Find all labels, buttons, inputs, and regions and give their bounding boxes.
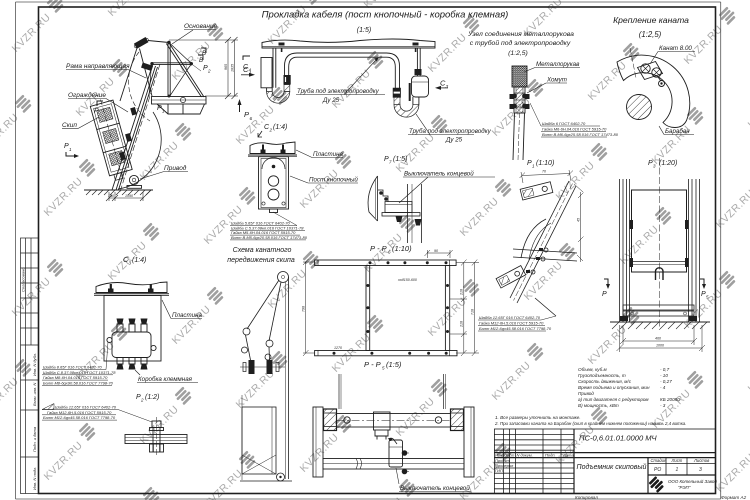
svg-text:Шайба С.8.37.08кп.016 ГОСТ 103: Шайба С.8.37.08кп.016 ГОСТ 10371-78 bbox=[43, 370, 116, 375]
svg-text:ГИП: ГИП bbox=[495, 468, 503, 473]
svg-text:N докум.: N докум. bbox=[517, 453, 533, 458]
svg-text:1000: 1000 bbox=[656, 344, 664, 348]
svg-text:- 0,7: - 0,7 bbox=[660, 367, 670, 372]
svg-text:1: 1 bbox=[532, 164, 535, 169]
svg-text:P: P bbox=[94, 108, 99, 115]
svg-text:Скип: Скип bbox=[62, 122, 77, 129]
svg-text:150: 150 bbox=[108, 194, 114, 198]
svg-text:1090: 1090 bbox=[125, 194, 133, 198]
svg-text:Крепление каната: Крепление каната bbox=[613, 15, 689, 25]
svg-text:210: 210 bbox=[460, 321, 464, 328]
svg-text:ход150-600: ход150-600 bbox=[397, 278, 417, 282]
svg-text:Схема канатного: Схема канатного bbox=[233, 247, 292, 254]
svg-text:Рама направляющая: Рама направляющая bbox=[66, 63, 130, 70]
svg-text:Р - Р: Р - Р bbox=[364, 360, 381, 369]
svg-text:Грузоподъемность, т: Грузоподъемность, т bbox=[578, 373, 626, 378]
svg-text:Хомут: Хомут bbox=[546, 77, 567, 84]
svg-text:Шайба 6 ГОСТ 6402-70: Шайба 6 ГОСТ 6402-70 bbox=[542, 121, 586, 126]
svg-text:Р: Р bbox=[602, 291, 607, 298]
svg-text:45: 45 bbox=[577, 218, 581, 222]
svg-text:Привод: Привод bbox=[164, 164, 187, 172]
svg-text:Время подъема и опускания, мин: Время подъема и опускания, мин bbox=[578, 385, 650, 390]
svg-text:- 3: - 3 bbox=[660, 403, 666, 408]
svg-text:Ду 25: Ду 25 bbox=[445, 137, 463, 144]
svg-text:5: 5 bbox=[382, 366, 385, 371]
svg-text:Болт М12-6gх45.58.016 ГОСТ 779: Болт М12-6gх45.58.016 ГОСТ 7798-70 bbox=[43, 415, 116, 420]
svg-text:Гайка М8-6Н.04.016 ГОСТ 5915-7: Гайка М8-6Н.04.016 ГОСТ 5915-70 bbox=[43, 375, 108, 380]
svg-text:РО: РО bbox=[654, 467, 661, 473]
svg-text:1270: 1270 bbox=[334, 346, 342, 350]
svg-text:Основание: Основание bbox=[184, 23, 218, 30]
svg-text:Ограждение: Ограждение bbox=[68, 91, 106, 99]
svg-text:1035: 1035 bbox=[231, 64, 235, 72]
svg-text:Болт М12-6gх45.58.016 ГОСТ 779: Болт М12-6gх45.58.016 ГОСТ 7798-70 bbox=[479, 326, 552, 331]
svg-text:Металлорукав: Металлорукав bbox=[536, 61, 580, 68]
svg-text:ООО Котельный Завод: ООО Котельный Завод bbox=[668, 479, 717, 484]
svg-text:Подп. и дата: Подп. и дата bbox=[32, 426, 37, 452]
svg-text:(1:20): (1:20) bbox=[659, 160, 677, 167]
svg-text:Взам. инв. N: Взам. инв. N bbox=[32, 383, 37, 406]
svg-text:(1:2,5): (1:2,5) bbox=[639, 30, 662, 39]
svg-text:Пластина: Пластина bbox=[172, 312, 203, 319]
svg-text:Формат А2: Формат А2 bbox=[721, 495, 747, 500]
svg-text:3: 3 bbox=[446, 84, 449, 90]
svg-text:Пластина: Пластина bbox=[313, 151, 344, 158]
svg-text:Листов: Листов bbox=[693, 458, 710, 463]
svg-text:Инв. N дубл.: Инв. N дубл. bbox=[32, 353, 37, 376]
svg-text:Канат 8.00: Канат 8.00 bbox=[659, 45, 692, 52]
svg-text:(1:4): (1:4) bbox=[132, 257, 146, 264]
svg-text:Гайка М12-6Н.5.016 ГОСТ 5915-7: Гайка М12-6Н.5.016 ГОСТ 5915-70 bbox=[47, 410, 112, 415]
svg-text:(1:5): (1:5) bbox=[386, 360, 402, 369]
svg-text:Подп.: Подп. bbox=[545, 453, 556, 458]
svg-text:Гайка М12-6Н.5.016 ГОСТ 5915-7: Гайка М12-6Н.5.016 ГОСТ 5915-70 bbox=[479, 321, 544, 326]
svg-text:(1:2): (1:2) bbox=[145, 394, 159, 401]
svg-text:Подъемник скиповый: Подъемник скиповый bbox=[577, 463, 647, 471]
svg-text:а) тип двигателя с редуктором: а) тип двигателя с редуктором bbox=[578, 397, 649, 402]
svg-text:3: 3 bbox=[699, 467, 702, 473]
svg-text:90: 90 bbox=[434, 249, 438, 253]
svg-text:Р: Р bbox=[244, 110, 249, 119]
svg-text:210: 210 bbox=[460, 289, 464, 296]
svg-text:Согласовано: Согласовано bbox=[21, 267, 26, 292]
svg-text:(1:2,5): (1:2,5) bbox=[508, 50, 528, 57]
svg-text:"РЭП": "РЭП" bbox=[678, 485, 691, 490]
svg-text:Инв. N подл.: Инв. N подл. bbox=[32, 467, 37, 490]
svg-text:Пост кнопочный: Пост кнопочный bbox=[309, 177, 358, 184]
svg-text:Лист: Лист bbox=[671, 458, 683, 463]
svg-text:Винт В.М6-6gх25.58.016 ГОСТ 17: Винт В.М6-6gх25.58.016 ГОСТ 17473-80 bbox=[542, 132, 619, 137]
svg-text:Винт В.М5-6gх20.58.016 ГОСТ 17: Винт В.М5-6gх20.58.016 ГОСТ 17473-80 bbox=[231, 235, 308, 240]
svg-text:2. При запасовки каната на Бар: 2. При запасовки каната на Барабан (скип… bbox=[494, 421, 686, 426]
svg-text:(1:10): (1:10) bbox=[392, 244, 412, 253]
svg-text:(1:4): (1:4) bbox=[273, 124, 287, 131]
svg-text:2: 2 bbox=[140, 398, 144, 403]
svg-text:Р - Р: Р - Р bbox=[370, 244, 387, 253]
svg-text:Барабан: Барабан bbox=[665, 128, 690, 135]
svg-text:1: 1 bbox=[69, 147, 72, 152]
svg-text:- 4: - 4 bbox=[660, 385, 666, 390]
svg-text:Привод: Привод bbox=[578, 391, 594, 396]
svg-text:460: 460 bbox=[655, 337, 661, 341]
svg-text:Копировал: Копировал bbox=[575, 495, 598, 500]
svg-text:Труба под электропроводку: Труба под электропроводку bbox=[409, 128, 492, 135]
svg-text:(1:10): (1:10) bbox=[536, 160, 554, 167]
svg-text:Стадия: Стадия bbox=[651, 458, 667, 463]
svg-text:965: 965 bbox=[224, 64, 228, 70]
svg-text:710: 710 bbox=[471, 309, 475, 315]
svg-text:- 10: - 10 bbox=[660, 373, 668, 378]
svg-text:Шайба 12.65Г 016 ГОСТ 6402-70: Шайба 12.65Г 016 ГОСТ 6402-70 bbox=[55, 405, 117, 410]
svg-text:КБ 20080: КБ 20080 bbox=[660, 397, 680, 402]
svg-text:с трубой под электропроводку: с трубой под электропроводку bbox=[470, 39, 571, 47]
svg-text:Объем, куб.м: Объем, куб.м bbox=[578, 367, 607, 372]
svg-text:Прокладка кабеля (пост кнопочн: Прокладка кабеля (пост кнопочный - короб… bbox=[262, 10, 509, 21]
svg-text:Коробка клеммная: Коробка клеммная bbox=[138, 376, 193, 383]
svg-text:Дата: Дата bbox=[562, 453, 574, 458]
svg-text:790: 790 bbox=[302, 306, 306, 312]
svg-text:Выключатель концевой: Выключатель концевой bbox=[400, 485, 470, 492]
svg-text:(1:5): (1:5) bbox=[357, 27, 371, 34]
svg-text:1: 1 bbox=[676, 467, 679, 473]
svg-text:2: 2 bbox=[269, 128, 273, 133]
svg-text:Гайка М6-6Н.04.016 ГОСТ 5915-7: Гайка М6-6Н.04.016 ГОСТ 5915-70 bbox=[542, 127, 607, 132]
svg-text:Узел соединения металлорукова: Узел соединения металлорукова bbox=[467, 30, 574, 38]
svg-text:Болт М8-6gх90.58.016 ГОСТ 7798: Болт М8-6gх90.58.016 ГОСТ 7798-70 bbox=[43, 380, 114, 385]
svg-text:Шайба 8.65Г 016 ГОСТ 6402-70: Шайба 8.65Г 016 ГОСТ 6402-70 bbox=[43, 365, 102, 370]
svg-text:Выключатель концевой: Выключатель концевой bbox=[404, 171, 474, 178]
svg-text:ПС-0,6.01.01.0000 МЧ: ПС-0,6.01.01.0000 МЧ bbox=[579, 434, 657, 443]
svg-text:- 0,27: - 0,27 bbox=[660, 379, 672, 384]
svg-text:(1:5): (1:5) bbox=[393, 156, 407, 163]
svg-text:Шайба 12.65Г 016 ГОСТ 6402-70: Шайба 12.65Г 016 ГОСТ 6402-70 bbox=[479, 315, 541, 320]
svg-text:Ду 25: Ду 25 bbox=[322, 97, 340, 104]
svg-text:2: 2 bbox=[207, 69, 211, 74]
svg-text:В) мощность, кВт: В) мощность, кВт bbox=[578, 403, 619, 408]
svg-text:Труба под электропроводку: Труба под электропроводку bbox=[297, 88, 380, 95]
svg-text:1. Все размеры уточнить на мон: 1. Все размеры уточнить на монтаже. bbox=[495, 415, 581, 420]
svg-text:В: В bbox=[199, 58, 203, 64]
svg-text:Скорость движения, м/с: Скорость движения, м/с bbox=[578, 379, 632, 384]
svg-text:70: 70 bbox=[542, 170, 546, 174]
svg-text:7: 7 bbox=[389, 160, 392, 165]
svg-text:6: 6 bbox=[250, 116, 253, 122]
svg-text:передвижения скипа: передвижения скипа bbox=[227, 256, 295, 264]
